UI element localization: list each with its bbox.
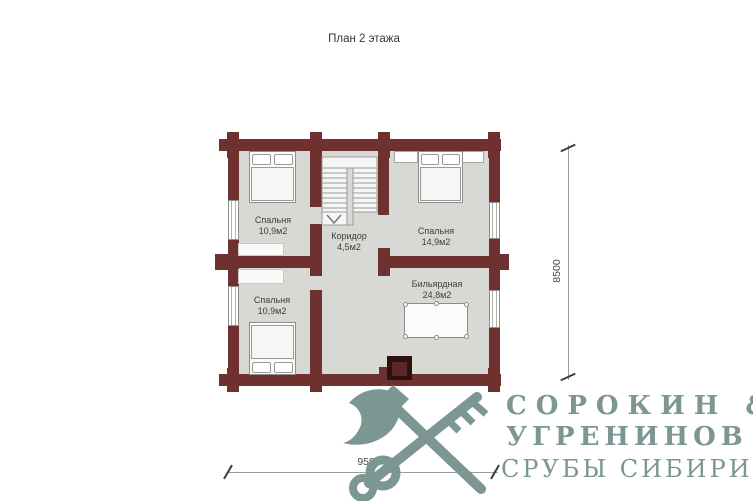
log-end-bottom-2 <box>310 368 322 392</box>
room-area: 10,9м2 <box>233 226 313 237</box>
room-label-bedroom-top-left: Спальня 10,9м2 <box>233 215 313 237</box>
bed-bedroom-top-left <box>249 151 296 203</box>
floor-plan-page: План 2 этажа <box>0 0 753 502</box>
window-right-upper <box>489 202 500 239</box>
room-area: 10,9м2 <box>232 306 312 317</box>
dimension-line-vertical <box>568 145 569 380</box>
logo-text-line3: СРУБЫ СИБИРИ <box>501 455 753 483</box>
room-label-bedroom-top-right: Спальня 14,9м2 <box>396 226 476 248</box>
wardrobe-top-left-room <box>238 243 284 256</box>
log-end-top-1 <box>227 132 239 158</box>
log-end-bottom-1 <box>227 368 239 392</box>
staircase <box>321 155 379 233</box>
room-name: Спальня <box>233 215 313 226</box>
wall-middle-left <box>228 256 322 268</box>
bed-bedroom-bottom-left <box>249 322 296 375</box>
fireplace-firebox <box>392 362 407 376</box>
wall-middle-right <box>378 256 500 268</box>
room-area: 14,9м2 <box>396 237 476 248</box>
room-name: Бильярдная <box>397 279 477 290</box>
page-title: План 2 этажа <box>264 33 464 45</box>
bed-bedroom-top-right <box>418 151 463 203</box>
billiard-table <box>404 303 468 338</box>
log-end-right-mid <box>500 254 509 270</box>
room-area: 24,8м2 <box>397 290 477 301</box>
log-end-top-4 <box>488 132 500 158</box>
room-name: Спальня <box>396 226 476 237</box>
log-end-left-mid <box>215 254 228 270</box>
room-label-billiard: Бильярдная 24,8м2 <box>397 279 477 301</box>
logo-text-line1: СОРОКИН & <box>506 391 753 421</box>
room-name: Спальня <box>232 295 312 306</box>
wall-corridor-right-a <box>378 151 389 215</box>
room-label-corridor: Коридор 4,5м2 <box>309 231 389 253</box>
dimension-height-label: 8500 <box>551 251 563 291</box>
logo-text-line2: УГРЕНИНОВ <box>506 422 748 452</box>
room-name: Коридор <box>309 231 389 242</box>
room-area: 4,5м2 <box>309 242 389 253</box>
wardrobe-bottom-left-room <box>238 269 284 284</box>
wall-top <box>219 139 501 151</box>
crossed-axe-key-icon <box>337 383 505 501</box>
room-label-bedroom-bottom-left: Спальня 10,9м2 <box>232 295 312 317</box>
log-end-top-3 <box>378 132 390 158</box>
window-right-lower <box>489 290 500 328</box>
